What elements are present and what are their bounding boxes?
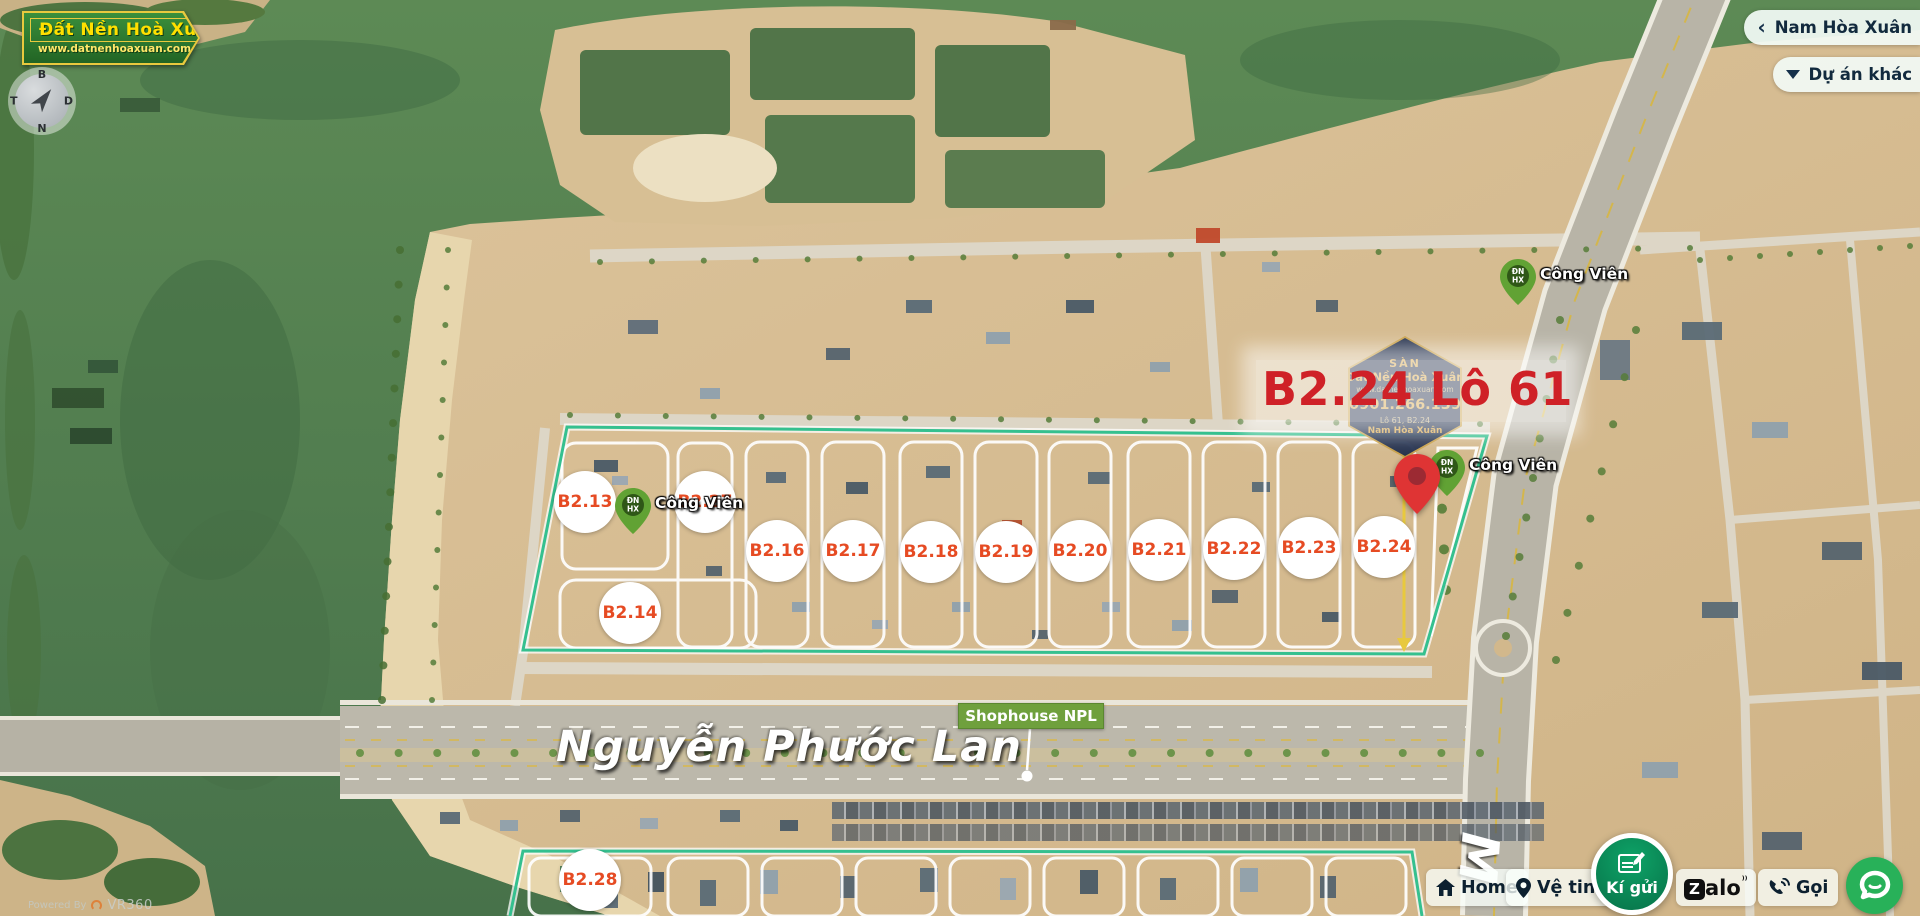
chat-widget-button[interactable] — [1846, 857, 1903, 914]
chat-bubble-icon — [1859, 870, 1891, 902]
attribution-brand: VR360 — [107, 898, 152, 913]
park-label: Công Viên — [655, 494, 743, 512]
zalo-icon: Zalo⁾⁾ — [1684, 876, 1748, 900]
selected-lot-title: B2.24 Lô 61 — [1262, 362, 1562, 416]
svg-text:HX: HX — [627, 505, 639, 514]
vr360-logo-icon — [91, 900, 102, 911]
consign-label: Kí gửi — [1606, 878, 1658, 897]
plot-label-B2.28: B2.28 — [559, 849, 621, 911]
map-canvas[interactable]: SÀNĐất Nền Hoà Xuânwww.datnenhoaxuan.com… — [0, 0, 1920, 916]
plot-label-B2.20: B2.20 — [1049, 520, 1111, 582]
svg-text:HX: HX — [1512, 276, 1524, 285]
park-label: Công Viên — [1469, 456, 1557, 474]
plot-label-B2.14: B2.14 — [599, 582, 661, 644]
call-label: Gọi — [1796, 878, 1828, 898]
plot-label-B2.17: B2.17 — [822, 520, 884, 582]
park-pin: ĐN HX Công Viên — [1500, 259, 1536, 309]
project-name: Nam Hòa Xuân — [1775, 18, 1912, 37]
attribution-prefix: Powered By — [28, 900, 86, 911]
street-label-nguyen-phuoc-lan: Nguyễn Phước Lan — [556, 722, 1022, 772]
park-label: Công Viên — [1540, 265, 1628, 283]
phone-icon — [1768, 878, 1790, 898]
compass-east: D — [64, 95, 73, 108]
other-projects-label: Dự án khác — [1809, 65, 1912, 84]
plot-label-B2.23: B2.23 — [1278, 517, 1340, 579]
chevron-left-icon: ‹ — [1757, 17, 1765, 37]
plot-label-B2.19: B2.19 — [975, 521, 1037, 583]
other-projects-dropdown[interactable]: Dự án khác — [1773, 57, 1920, 92]
compass-rose: B T D N — [8, 67, 76, 135]
plot-label-B2.24: B2.24 — [1353, 516, 1415, 578]
selected-lot-pin — [1394, 454, 1440, 518]
plot-label-B2.16: B2.16 — [746, 520, 808, 582]
plot-label-B2.21: B2.21 — [1128, 519, 1190, 581]
caret-down-icon — [1786, 70, 1800, 79]
site-logo-url: www.datnenhoaxuan.com — [38, 43, 191, 55]
project-back-button[interactable]: ‹ Nam Hòa Xuân — [1744, 10, 1920, 45]
shophouse-npl-label: Shophouse NPL — [958, 703, 1104, 729]
watermark-line: Nam Hòa Xuân — [1368, 426, 1443, 437]
map-attribution: Powered By VR360 — [28, 898, 153, 913]
park-pin: ĐN HX Công Viên — [615, 488, 651, 538]
plot-label-B2.22: B2.22 — [1203, 518, 1265, 580]
site-logo: Đất Nền Hoà Xuân www.datnenhoaxuan.com — [22, 11, 200, 65]
note-pencil-icon — [1618, 851, 1646, 877]
consign-button[interactable]: Kí gửi — [1591, 833, 1673, 915]
call-button[interactable]: Gọi — [1758, 869, 1838, 906]
svg-text:HX: HX — [1441, 467, 1453, 476]
zalo-button[interactable]: Zalo⁾⁾ — [1676, 869, 1756, 906]
home-icon — [1436, 879, 1455, 896]
plot-label-B2.18: B2.18 — [900, 521, 962, 583]
plot-outlines — [0, 0, 1920, 916]
plot-label-B2.13: B2.13 — [554, 471, 616, 533]
map-pin-icon — [1516, 878, 1531, 898]
compass-west: T — [10, 95, 18, 108]
